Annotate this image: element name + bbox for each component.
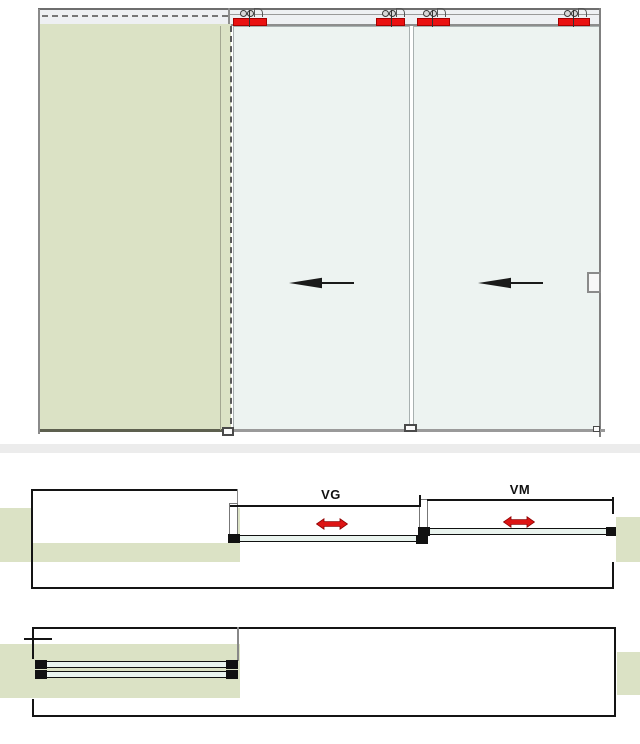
roller-wheel-icon [240,10,247,17]
datum-tick [24,638,52,640]
floor-guide-middle [404,424,417,432]
glass-clamp [35,670,47,679]
wall-top-line [32,627,616,629]
anti-jump-hook-icon [437,8,446,17]
vm-dimension-tick [612,497,614,514]
carriage-body [417,18,450,26]
wall-top-line [31,489,238,491]
wall-left-line [31,489,33,589]
roller-wheel-icon [564,10,571,17]
vm-dimension-line [427,499,613,501]
wall-left-line-upper [32,627,34,659]
overall-dimension-line [31,587,614,589]
glass-clamp [416,535,428,544]
carriage-pin [391,10,393,27]
roller-wheel-icon [423,10,430,17]
wall-pocket [32,489,238,543]
panel-end-profile [229,503,238,535]
vm-label: VM [503,482,537,497]
parked-glass-panel-2 [36,671,238,678]
carriage-pin [432,10,434,27]
vg-dimension-line [230,505,420,507]
wall-section-right [616,517,640,562]
red-double-arrow-icon [503,516,535,528]
wall-right-line [614,627,616,717]
track-rail-line [228,14,601,15]
carriage-pin [249,10,251,27]
parked-glass-panel-1 [36,661,238,668]
anti-jump-hook-icon [396,8,405,17]
sliding-panel-2 [413,26,601,430]
slide-direction-arrow-icon [477,276,545,290]
floor-guide-right [593,426,600,432]
drawing-canvas: VG VM [0,0,640,744]
carriage-pin [573,10,575,27]
glass-clamp [418,527,430,536]
vg-dimension-tick [419,495,421,507]
vg-label: VG [314,487,348,502]
sliding-panel-hidden-edge-dashed [230,26,232,434]
wall-bottom-line [32,715,616,717]
bottom-rail [231,429,605,432]
wall-panel-inner-edge [220,26,221,430]
anti-jump-hook-icon [578,8,587,17]
vm-glass-panel-plan [424,528,612,535]
roller-wheel-icon [382,10,389,17]
wall-right-line [612,562,614,588]
slide-direction-arrow-icon [288,276,356,290]
wall-section-right [617,652,640,695]
vg-glass-panel-plan [234,535,422,542]
fixed-wall-panel [40,24,231,432]
anti-jump-hook-icon [254,8,263,17]
floor-guide-left [222,427,234,436]
sliding-panel-1 [233,26,410,430]
section-divider [0,444,640,453]
track-hidden-dashed-line [42,15,228,17]
glass-clamp [35,660,47,669]
carriage-body [233,18,267,26]
door-handle [587,272,601,293]
red-double-arrow-icon [316,518,348,530]
pocket-edge-line [237,627,239,661]
frame-right-edge [599,8,601,437]
glass-clamp [228,534,240,543]
glass-clamp [226,660,238,669]
glass-clamp [226,670,238,679]
carriage-body [558,18,590,26]
